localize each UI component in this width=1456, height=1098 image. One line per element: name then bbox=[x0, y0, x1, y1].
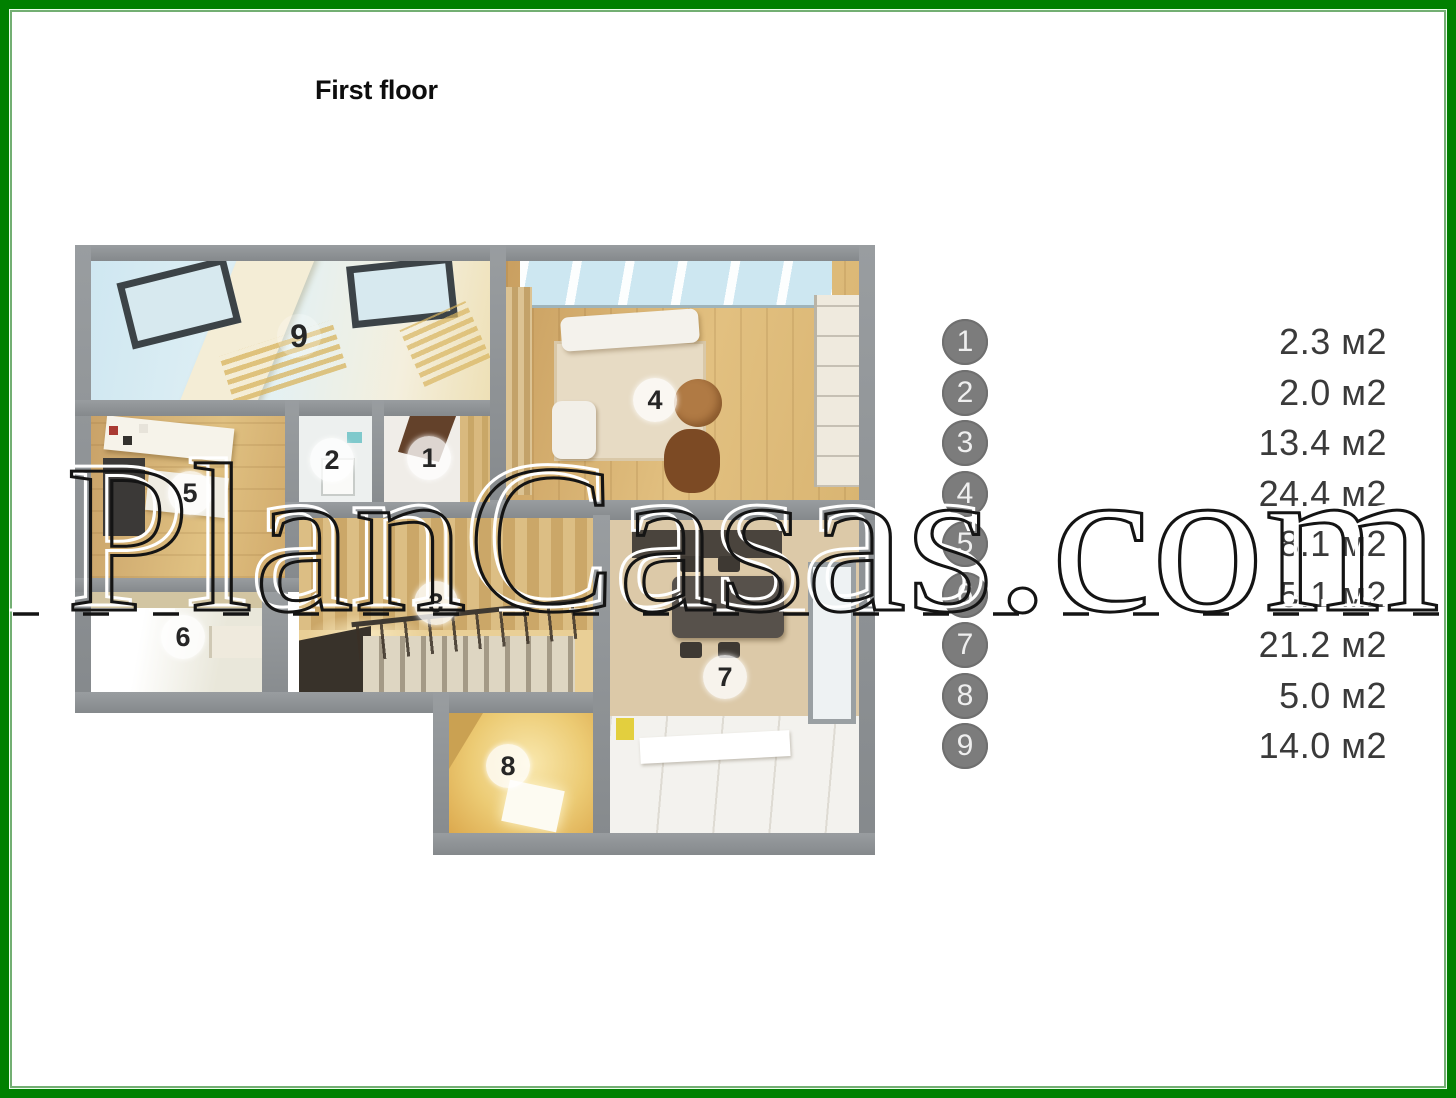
fridge bbox=[103, 458, 145, 536]
room-3-badge: 3 bbox=[414, 581, 458, 625]
room-6-badge: 6 bbox=[161, 615, 205, 659]
bathroom-counter bbox=[209, 626, 262, 658]
room-5-badge: 5 bbox=[168, 471, 212, 515]
shelf bbox=[91, 592, 262, 608]
legend-number-badge: 9 bbox=[942, 723, 988, 769]
legend-area-value: 8.1 м2 bbox=[1279, 523, 1387, 565]
wall bbox=[75, 245, 91, 713]
legend-area-value: 21.2 м2 bbox=[1259, 624, 1387, 666]
decor-item bbox=[109, 426, 118, 435]
legend-row: 8 5.0 м2 bbox=[942, 673, 1387, 719]
legend-area-value: 5.0 м2 bbox=[1279, 675, 1387, 717]
room-4-living-room bbox=[506, 261, 859, 500]
chair bbox=[718, 556, 740, 572]
chair bbox=[680, 642, 702, 658]
legend-number-badge: 5 bbox=[942, 521, 988, 567]
room-1-badge: 1 bbox=[407, 436, 451, 480]
wall bbox=[490, 500, 875, 520]
armchair bbox=[552, 401, 596, 459]
wall bbox=[285, 400, 299, 590]
page-frame: First floor bbox=[0, 0, 1456, 1098]
legend-row: 4 24.4 м2 bbox=[942, 471, 1387, 517]
room-4-badge: 4 bbox=[633, 378, 677, 422]
legend-number-badge: 3 bbox=[942, 420, 988, 466]
legend-number-badge: 8 bbox=[942, 673, 988, 719]
decor-item bbox=[347, 432, 362, 443]
legend-area-value: 14.0 м2 bbox=[1259, 725, 1387, 767]
room-8-badge: 8 bbox=[486, 744, 530, 788]
room-2-badge: 2 bbox=[310, 438, 354, 482]
window bbox=[808, 562, 856, 724]
room-9-badge: 9 bbox=[277, 314, 321, 358]
decor-item bbox=[139, 424, 148, 433]
wall bbox=[859, 245, 875, 855]
legend-row: 1 2.3 м2 bbox=[942, 319, 1387, 365]
legend-area-value: 13.4 м2 bbox=[1259, 422, 1387, 464]
wall bbox=[490, 245, 506, 517]
legend-row: 7 21.2 м2 bbox=[942, 622, 1387, 668]
legend-area-value: 5.1 м2 bbox=[1279, 574, 1387, 616]
room-7-badge: 7 bbox=[703, 655, 747, 699]
legend: 1 2.3 м2 2 2.0 м2 3 13.4 м2 4 24.4 м2 5 … bbox=[942, 319, 1387, 769]
sideboard bbox=[632, 530, 782, 558]
legend-row: 2 2.0 м2 bbox=[942, 370, 1387, 416]
decor-item bbox=[123, 436, 132, 445]
skylight-strip bbox=[520, 261, 832, 308]
legend-number-badge: 1 bbox=[942, 319, 988, 365]
wall-shadow bbox=[449, 713, 483, 769]
legend-number-badge: 6 bbox=[942, 572, 988, 618]
round-chair bbox=[674, 379, 722, 427]
legend-number-badge: 7 bbox=[942, 622, 988, 668]
floor-plan: 1 2 3 4 5 6 7 8 9 bbox=[75, 245, 875, 855]
skylight-slats bbox=[520, 261, 832, 305]
legend-area-value: 24.4 м2 bbox=[1259, 473, 1387, 515]
chair bbox=[680, 556, 702, 572]
curtains bbox=[506, 287, 532, 495]
decor-item bbox=[616, 718, 634, 740]
wall-cabinet bbox=[814, 295, 859, 487]
legend-area-value: 2.3 м2 bbox=[1279, 321, 1387, 363]
legend-number-badge: 4 bbox=[942, 471, 988, 517]
wall bbox=[593, 515, 610, 855]
legend-row: 9 14.0 м2 bbox=[942, 723, 1387, 769]
wall bbox=[75, 578, 299, 592]
legend-row: 5 8.1 м2 bbox=[942, 521, 1387, 567]
wall bbox=[75, 692, 615, 713]
lounge-chair bbox=[664, 429, 720, 493]
legend-row: 6 5.1 м2 bbox=[942, 572, 1387, 618]
wood-floor bbox=[460, 416, 490, 502]
wall bbox=[285, 502, 506, 518]
wall bbox=[433, 692, 449, 855]
legend-row: 3 13.4 м2 bbox=[942, 420, 1387, 466]
legend-area-value: 2.0 м2 bbox=[1279, 372, 1387, 414]
dining-table bbox=[672, 576, 784, 638]
wall bbox=[433, 833, 875, 855]
page-title: First floor bbox=[315, 75, 438, 106]
wall bbox=[75, 245, 875, 261]
legend-number-badge: 2 bbox=[942, 370, 988, 416]
